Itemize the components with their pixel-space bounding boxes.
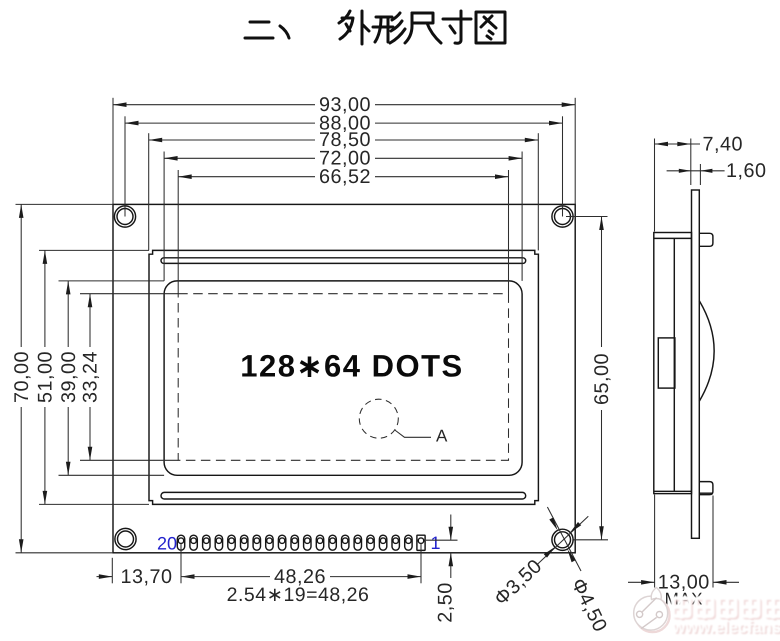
svg-text:70,00: 70,00	[11, 351, 33, 403]
svg-text:20: 20	[157, 534, 177, 554]
svg-text:51,00: 51,00	[35, 351, 57, 403]
svg-text:66,52: 66,52	[319, 166, 371, 188]
svg-text:2,50: 2,50	[435, 582, 457, 623]
svg-text:A: A	[436, 427, 448, 446]
svg-text:2.54∗19=48,26: 2.54∗19=48,26	[227, 584, 370, 606]
svg-text:65,00: 65,00	[591, 353, 613, 405]
svg-text:Φ3,50: Φ3,50	[490, 555, 546, 610]
svg-text:13,70: 13,70	[120, 566, 172, 588]
svg-text:128∗64 DOTS: 128∗64 DOTS	[240, 349, 463, 384]
svg-text:www.elecfans.com: www.elecfans.com	[672, 619, 780, 637]
svg-text:33,24: 33,24	[80, 351, 102, 403]
svg-text:1: 1	[431, 533, 441, 553]
svg-text:7,40: 7,40	[703, 134, 744, 156]
svg-text:39,00: 39,00	[58, 351, 80, 403]
svg-text:Φ4,50: Φ4,50	[567, 575, 612, 636]
svg-text:1,60: 1,60	[726, 160, 767, 182]
